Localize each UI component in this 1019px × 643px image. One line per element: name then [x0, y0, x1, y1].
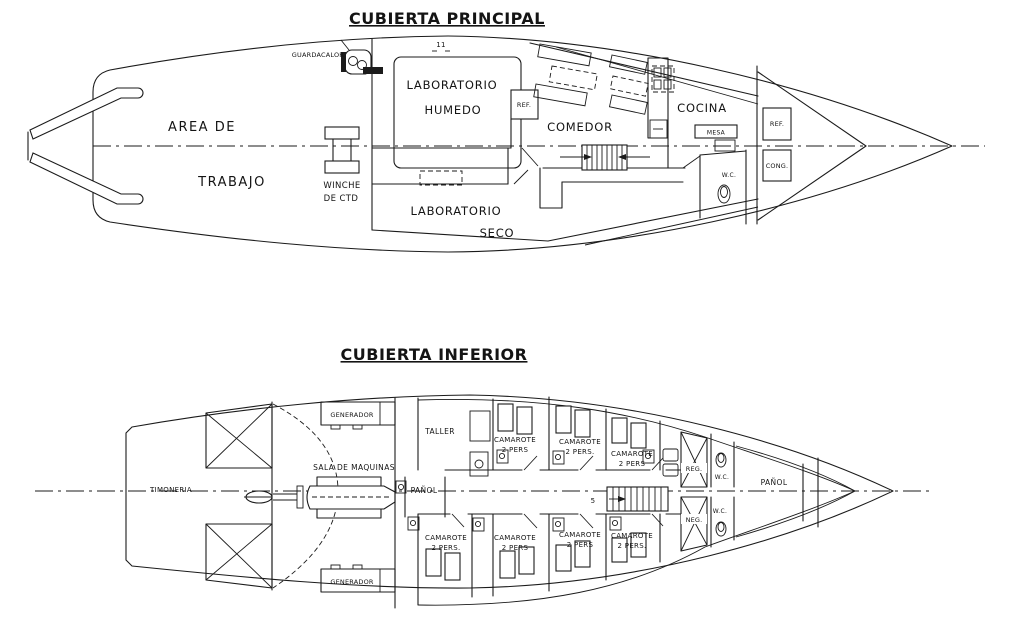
cabin-label: CAMAROTE [559, 531, 601, 539]
x-brace-panel [681, 432, 707, 487]
x-brace-panel [206, 524, 272, 588]
basin-icon [408, 517, 419, 530]
winche-label-2: DE CTD [324, 194, 359, 204]
cabin-label: 2 PERS [567, 541, 594, 549]
cabin-label: CAMAROTE [494, 436, 536, 444]
cabin-label: CAMAROTE [494, 534, 536, 542]
deck-plans-svg: CUBIERTA PRINCIPAL GUARDACALOR 11 LABORA… [0, 0, 1019, 643]
wc-room: W.C. [683, 150, 746, 224]
area-trabajo-label-2: TRABAJO [197, 175, 266, 190]
door-swing [522, 148, 538, 166]
stairs-icon [560, 145, 650, 170]
cabin-label: 2 PERS [619, 460, 646, 468]
engine-icon [244, 477, 395, 518]
toilet-icon [716, 453, 726, 467]
frame-mark-label: 11 [436, 41, 446, 49]
wc-label: W.C. [722, 172, 736, 179]
taller-label: TALLER [424, 427, 455, 436]
cabin-label: 2 PERS [502, 446, 529, 454]
lower-deck-plan: CUBIERTA INFERIOR TIMONERIA GENERADOR [35, 345, 930, 608]
door-swing [683, 156, 700, 168]
wc-top-label: W.C. [715, 474, 729, 481]
area-trabajo-label-1: AREA DE [168, 120, 236, 135]
main-hull-outline [93, 36, 952, 252]
winch-icon [325, 127, 359, 173]
ref-bow-label: REF. [770, 120, 784, 128]
passage-notch [540, 168, 562, 208]
workbench [470, 411, 490, 441]
sala-maquinas-label: SALA DE MAQUINAS [313, 463, 395, 472]
neg-label: NEG. [686, 516, 703, 524]
cabin-label: CAMAROTE [611, 532, 653, 540]
generador-top-label: GENERADOR [330, 411, 374, 419]
lab-humedo-label-2: HUMEDO [425, 103, 482, 117]
cong-bow-label: CONG. [766, 162, 789, 170]
winche-label-1: WINCHE [323, 181, 360, 191]
cabin-label: 2 PERS. [432, 544, 461, 552]
ship-deck-plan-drawing: CUBIERTA PRINCIPAL GUARDACALOR 11 LABORA… [0, 0, 1019, 643]
wall-stub [363, 67, 383, 74]
reg-label: REG. [686, 465, 703, 473]
lower-deck-title: CUBIERTA INFERIOR [341, 345, 528, 364]
toilet-icon [718, 185, 730, 203]
cabin-label: CAMAROTE [611, 450, 653, 458]
cabin-label: CAMAROTE [425, 534, 467, 542]
cabinet [663, 449, 678, 461]
cabin-label: 2 PERS. [566, 448, 595, 456]
cabin-label: CAMAROTE [559, 438, 601, 446]
comedor-label: COMEDOR [547, 120, 613, 134]
cabin-label: 2 PERS [502, 544, 529, 552]
panol-mid-label: PAÑOL [411, 486, 438, 495]
timoneria-label: TIMONERIA [149, 486, 192, 494]
mess-benches [534, 44, 648, 114]
panol-bow-label: PAÑOL [761, 478, 788, 487]
cabin-label: 2 PERS. [618, 542, 647, 550]
generador-bottom-label: GENERADOR [330, 578, 374, 586]
ref-pantry-label: REF. [517, 101, 531, 109]
door-swing [514, 170, 528, 184]
cocina-label: COCINA [677, 101, 727, 115]
main-deck-title: CUBIERTA PRINCIPAL [349, 9, 545, 28]
toilet-icon [716, 522, 726, 536]
guardacalor-label: GUARDACALOR [292, 51, 344, 59]
stair-mark-label: 5 [591, 497, 596, 505]
lab-seco-label-1: LABORATORIO [410, 204, 501, 218]
main-deck-plan: CUBIERTA PRINCIPAL GUARDACALOR 11 LABORA… [28, 9, 985, 252]
cabinet [470, 452, 488, 476]
stairs-icon [607, 487, 668, 511]
hatch-opening [420, 171, 462, 185]
mesa-label: MESA [707, 130, 726, 137]
lab-humedo-label-1: LABORATORIO [406, 78, 497, 92]
wc-bottom-label: W.C. [713, 508, 727, 515]
